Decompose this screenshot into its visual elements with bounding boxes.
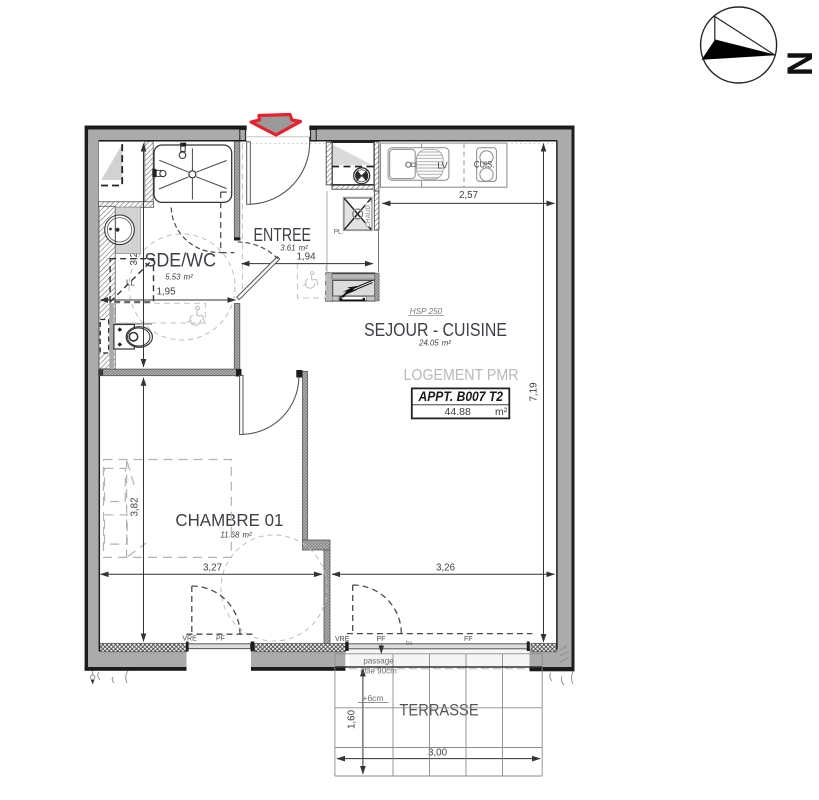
- svg-text:CHAUD.: CHAUD.: [365, 203, 372, 227]
- svg-text:24.05 m²: 24.05 m²: [418, 338, 451, 347]
- svg-text:1,94: 1,94: [296, 252, 316, 263]
- svg-text:+6cm: +6cm: [362, 693, 383, 703]
- svg-text:APPT. B007 T2: APPT. B007 T2: [418, 389, 504, 404]
- svg-text:LOGEMENT PMR: LOGEMENT PMR: [404, 367, 519, 384]
- svg-text:7,19: 7,19: [529, 382, 540, 401]
- svg-text:1,60: 1,60: [347, 709, 358, 729]
- svg-text:PL.: PL.: [334, 229, 344, 236]
- svg-text:ENTREE: ENTREE: [254, 224, 312, 245]
- svg-text:3,26: 3,26: [436, 563, 456, 574]
- svg-text:3,82: 3,82: [130, 497, 141, 516]
- svg-text:3,27: 3,27: [203, 563, 222, 574]
- svg-text:11.68 m²: 11.68 m²: [220, 531, 252, 540]
- svg-text:ba: ba: [406, 641, 413, 647]
- svg-text:utile 90cm: utile 90cm: [360, 667, 397, 676]
- svg-text:44.88: 44.88: [445, 406, 471, 418]
- svg-text:VRE: VRE: [182, 635, 197, 642]
- svg-text:2,57: 2,57: [459, 190, 478, 201]
- svg-text:PF: PF: [216, 635, 225, 642]
- svg-text:5.53 m²: 5.53 m²: [165, 273, 193, 282]
- svg-text:m²: m²: [495, 406, 508, 418]
- svg-text:CUIS.: CUIS.: [474, 160, 495, 170]
- svg-text:3,00: 3,00: [428, 748, 448, 759]
- svg-text:1,95: 1,95: [156, 287, 176, 298]
- svg-text:CHAMBRE 01: CHAMBRE 01: [175, 510, 283, 530]
- svg-text:HSP 250: HSP 250: [410, 307, 443, 316]
- svg-text:PF: PF: [377, 636, 386, 643]
- svg-text:LV: LV: [437, 160, 447, 170]
- svg-text:FF: FF: [464, 636, 473, 643]
- svg-text:SEJOUR - CUISINE: SEJOUR - CUISINE: [364, 319, 507, 340]
- svg-text:N: N: [780, 51, 819, 76]
- svg-text:TERRASSE: TERRASSE: [399, 701, 478, 720]
- svg-text:passage: passage: [363, 657, 394, 666]
- svg-text:LL: LL: [126, 279, 135, 288]
- svg-text:SDE/WC: SDE/WC: [144, 250, 216, 272]
